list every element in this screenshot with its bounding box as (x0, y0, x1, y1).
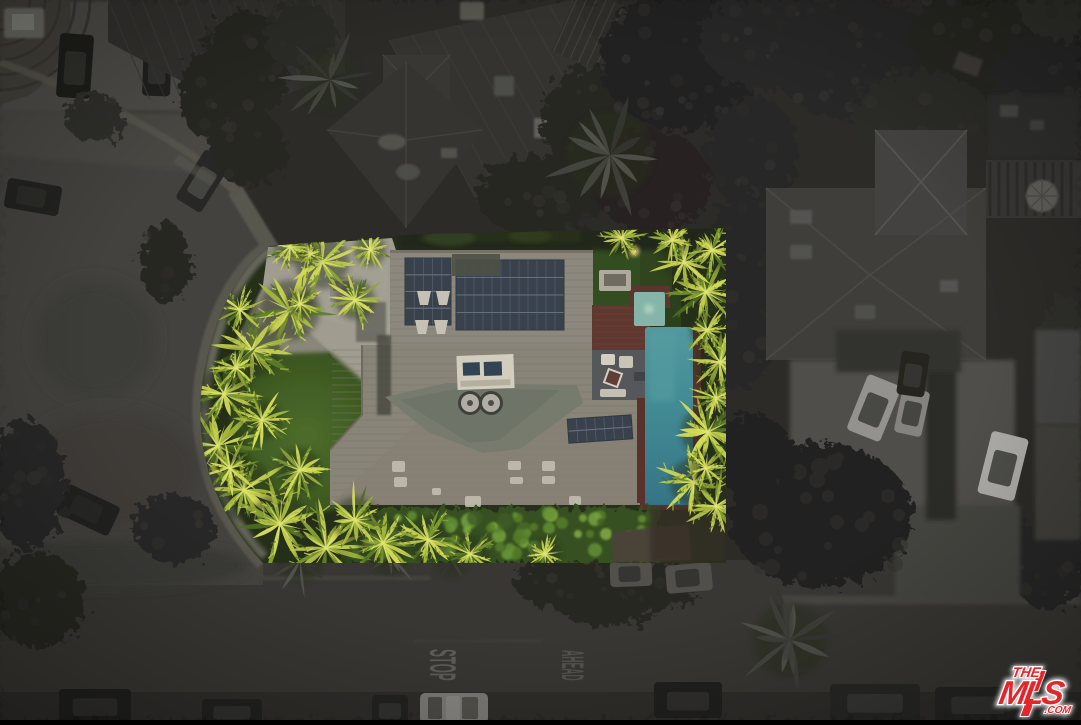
svg-text:.COM: .COM (1044, 705, 1073, 716)
